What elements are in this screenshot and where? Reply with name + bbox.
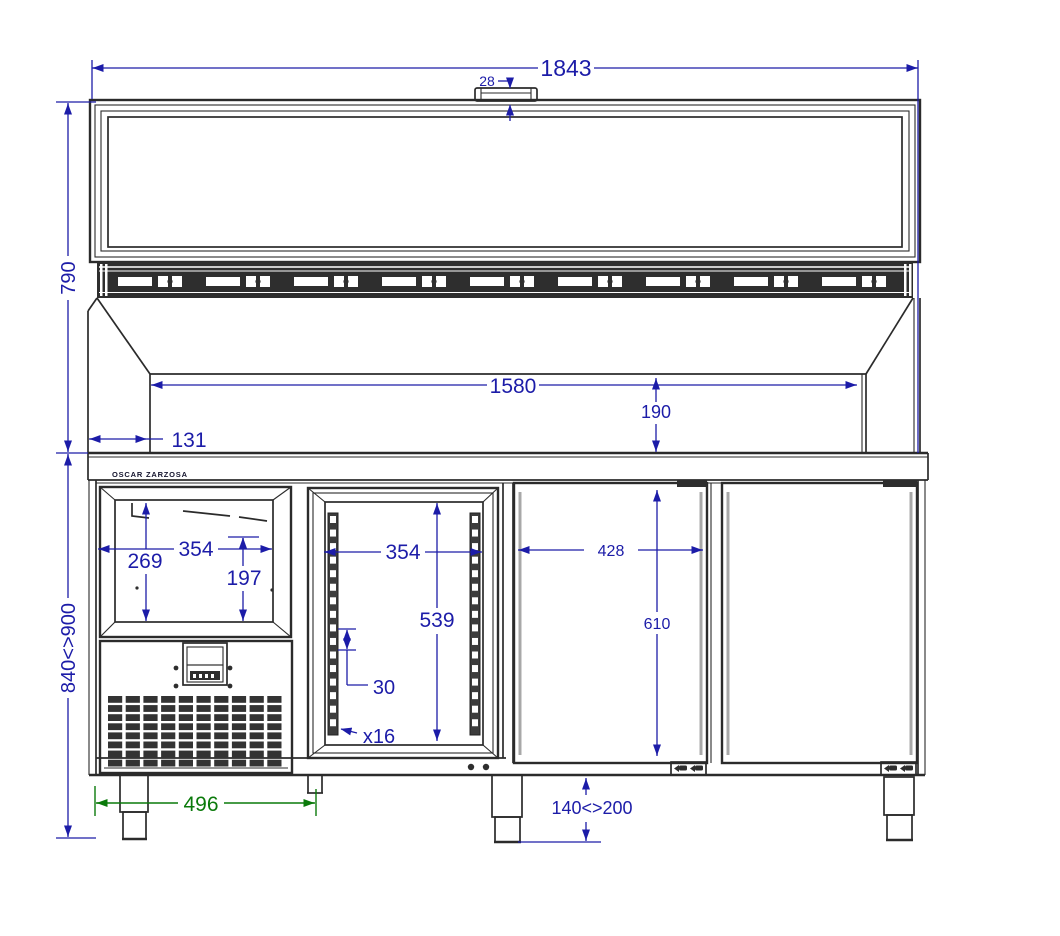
compressor-section [100, 641, 292, 773]
door-2-top-hinge [883, 480, 917, 487]
foot-left [120, 775, 148, 839]
dimension-left-offset: 131 [89, 429, 207, 452]
svg-text:1843: 1843 [540, 55, 591, 81]
svg-text:840<>900: 840<>900 [58, 603, 80, 693]
svg-text:197: 197 [226, 567, 261, 590]
dimension-well-depth: 190 [641, 378, 671, 452]
sketch-line [239, 517, 267, 521]
svg-text:269: 269 [127, 550, 162, 573]
rack-rail-left [328, 513, 338, 735]
feet [120, 775, 914, 842]
svg-text:131: 131 [171, 429, 206, 452]
panel-screw [228, 684, 233, 689]
panel-screw [228, 666, 233, 671]
panel-screw [174, 666, 179, 671]
svg-text:610: 610 [644, 616, 671, 633]
dimension-handle-height: 28 [479, 73, 510, 121]
rack-rail-right [470, 513, 480, 735]
ventilation-grille [108, 696, 282, 767]
plinth-screw [483, 764, 489, 770]
foot-stub [307, 775, 323, 793]
dimension-bin-height: 269 [127, 503, 162, 621]
svg-text:539: 539 [419, 609, 454, 632]
door-2 [722, 483, 917, 763]
svg-text:190: 190 [641, 402, 671, 422]
brand-logo: OSCAR ZARZOSA [112, 470, 188, 479]
svg-text:140<>200: 140<>200 [551, 798, 632, 818]
svg-text:x16: x16 [363, 726, 395, 748]
glass-lid [90, 100, 920, 262]
technical-drawing-canvas: OSCAR ZARZOSA [0, 0, 1060, 936]
dimension-door-height: 610 [644, 490, 671, 756]
dimension-rack-width: 354 [324, 541, 482, 564]
svg-text:428: 428 [598, 543, 625, 560]
svg-text:30: 30 [373, 677, 395, 699]
dimension-body-height: 840<>900 [56, 454, 96, 838]
door-section [503, 480, 917, 775]
foot-right [884, 777, 914, 840]
door-1-top-hinge [677, 480, 707, 487]
svg-text:354: 354 [385, 541, 420, 564]
svg-text:28: 28 [479, 73, 495, 89]
cabinet-body [89, 480, 925, 775]
counter-front-elevation: OSCAR ZARZOSA [0, 0, 1060, 936]
dimension-bin-width: 354 [98, 538, 272, 561]
dimension-foot-height: 140<>200 [518, 778, 633, 842]
counter-top: OSCAR ZARZOSA [88, 453, 928, 480]
dimension-slot-pitch: 30 [338, 629, 395, 699]
svg-text:496: 496 [183, 793, 218, 816]
svg-text:354: 354 [178, 538, 213, 561]
rack-compartment [308, 488, 498, 758]
plinth-screw [468, 764, 474, 770]
dimension-rack-height: 539 [419, 503, 454, 741]
control-panel [174, 643, 233, 688]
door-1 [514, 483, 707, 763]
dimension-door-width: 428 [518, 543, 703, 560]
hinge-strip [97, 262, 913, 298]
sketch-line [183, 511, 230, 516]
svg-text:1580: 1580 [490, 375, 537, 398]
dimension-well-width: 1580 [151, 375, 857, 398]
panel-screw [174, 684, 179, 689]
svg-text:790: 790 [58, 261, 80, 294]
lid-glass-pane [108, 117, 902, 247]
foot-center [492, 775, 522, 842]
